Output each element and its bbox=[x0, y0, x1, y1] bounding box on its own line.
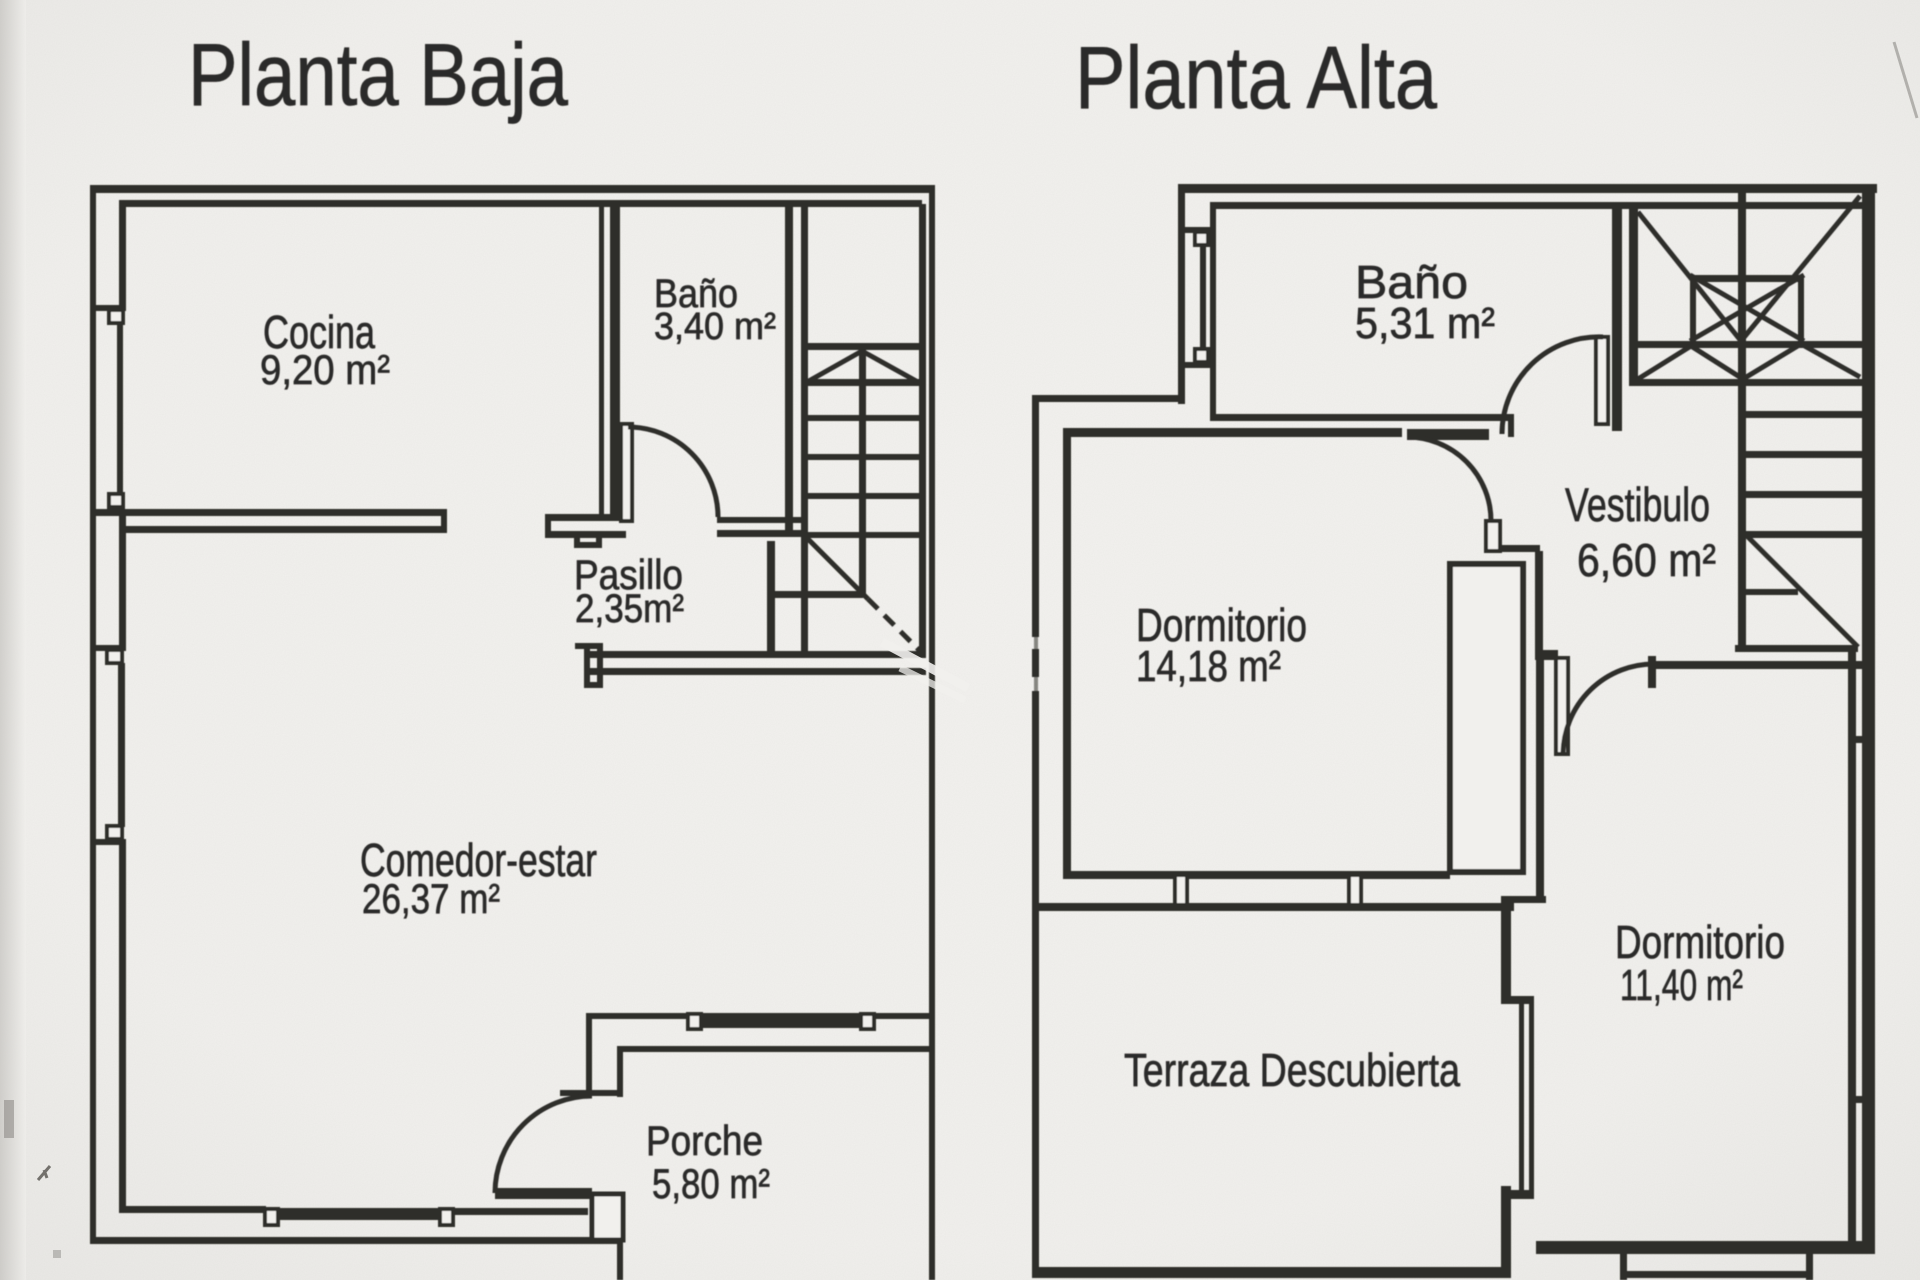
svg-text:5,31 m²: 5,31 m² bbox=[1355, 299, 1495, 348]
svg-text:9,20 m²: 9,20 m² bbox=[260, 346, 390, 393]
svg-text:2,35m²: 2,35m² bbox=[575, 587, 684, 631]
svg-text:5,80 m²: 5,80 m² bbox=[652, 1160, 770, 1207]
svg-text:Terraza Descubierta: Terraza Descubierta bbox=[1124, 1044, 1460, 1096]
svg-text:Planta Alta: Planta Alta bbox=[1075, 28, 1437, 127]
svg-text:3,40 m²: 3,40 m² bbox=[654, 306, 776, 348]
svg-text:11,40 m²: 11,40 m² bbox=[1620, 961, 1743, 1010]
svg-text:14,18 m²: 14,18 m² bbox=[1136, 642, 1281, 691]
svg-text:26,37 m²: 26,37 m² bbox=[362, 875, 500, 922]
svg-text:Planta Baja: Planta Baja bbox=[188, 25, 568, 124]
svg-text:Vestibulo: Vestibulo bbox=[1565, 478, 1710, 531]
svg-text:Porche: Porche bbox=[646, 1117, 763, 1164]
svg-text:6,60 m²: 6,60 m² bbox=[1577, 534, 1716, 586]
